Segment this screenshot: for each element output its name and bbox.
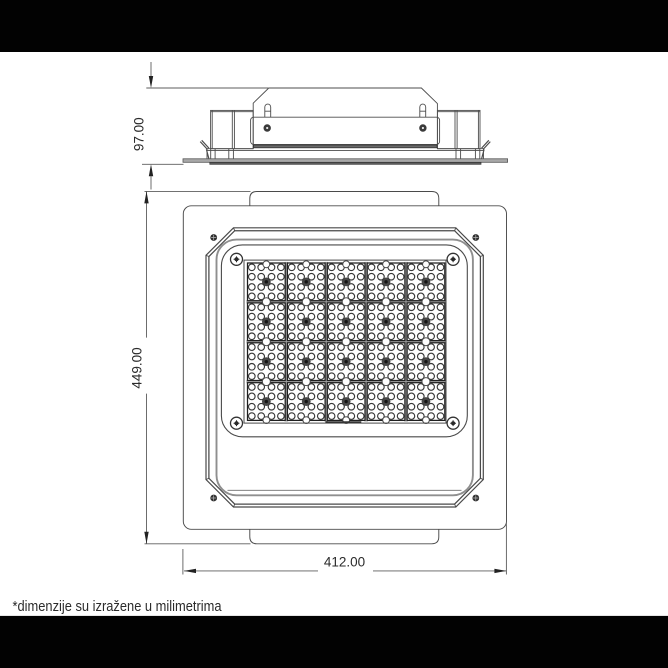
svg-text:*dimenzije su izražene u milim: *dimenzije su izražene u milimetrima bbox=[13, 598, 223, 615]
svg-text:412.00: 412.00 bbox=[324, 555, 365, 570]
svg-text:97.00: 97.00 bbox=[131, 117, 146, 151]
svg-text:449.00: 449.00 bbox=[129, 347, 144, 388]
